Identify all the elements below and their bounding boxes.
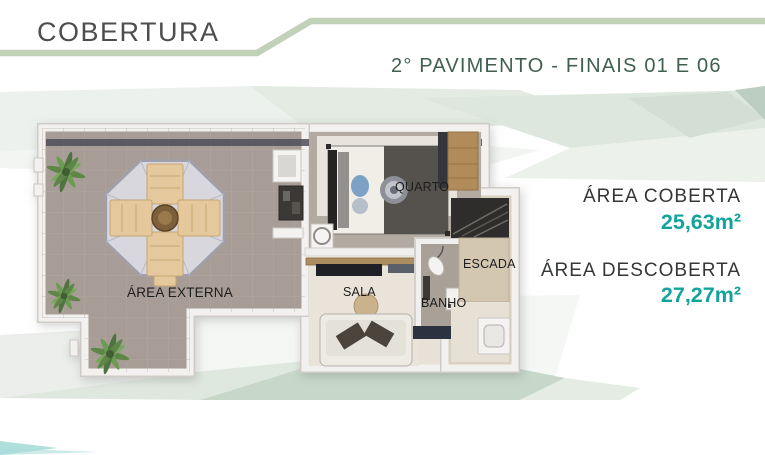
area-coberta-value: 25,63m² xyxy=(541,209,741,236)
area-descoberta-block: ÁREA DESCOBERTA 27,27m² xyxy=(541,260,741,310)
page-subtitle: 2° PAVIMENTO - FINAIS 01 E 06 xyxy=(391,55,722,78)
room-label-banho: BANHO xyxy=(421,297,466,310)
page-title: COBERTURA xyxy=(37,17,220,48)
area-coberta-label: ÁREA COBERTA xyxy=(541,186,741,209)
floor-plan-drawing xyxy=(42,128,515,380)
left-wall-door-2 xyxy=(34,184,43,196)
area-descoberta-label: ÁREA DESCOBERTA xyxy=(541,260,741,283)
room-label-sala: SALA xyxy=(343,286,376,299)
brochure-page: COBERTURA 2° PAVIMENTO - FINAIS 01 E 06 xyxy=(0,0,765,455)
floor-plan: ÁREA EXTERNA QUARTO SALA BANHO ESCADA xyxy=(42,128,515,380)
room-label-area-externa: ÁREA EXTERNA xyxy=(114,286,246,300)
left-wall-door xyxy=(34,158,43,172)
shelf xyxy=(273,228,303,238)
area-coberta-block: ÁREA COBERTA 25,63m² xyxy=(541,186,741,236)
room-label-quarto: QUARTO xyxy=(395,181,449,194)
bottom-left-accent xyxy=(0,441,110,455)
area-summary: ÁREA COBERTA 25,63m² ÁREA DESCOBERTA 27,… xyxy=(541,186,741,333)
area-descoberta-value: 27,27m² xyxy=(541,282,741,309)
bath-mat xyxy=(413,326,457,339)
room-label-escada: ESCADA xyxy=(463,258,516,271)
lower-left-door xyxy=(70,340,78,356)
staircase xyxy=(451,198,510,362)
